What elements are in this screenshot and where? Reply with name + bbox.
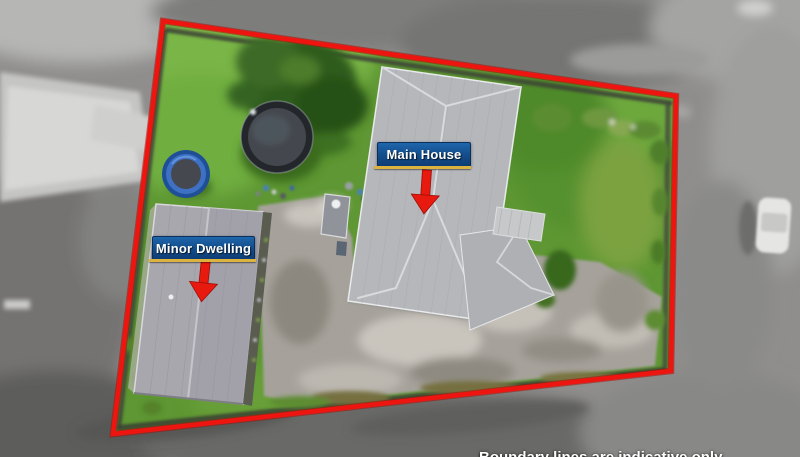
boundary-disclaimer-caption: Boundary lines are indicative only <box>479 449 722 457</box>
aerial-property-photo: Main House Minor Dwelling Boundary lines… <box>0 0 800 457</box>
minor-dwelling-label: Minor Dwelling <box>152 236 255 260</box>
aerial-photo-canvas <box>0 0 800 457</box>
minor-dwelling-label-underline <box>149 259 256 262</box>
car <box>739 197 792 255</box>
minor-dwelling-label-text: Minor Dwelling <box>156 241 251 256</box>
minor-dwelling-roof <box>128 204 272 406</box>
main-house-label-underline <box>374 166 471 169</box>
main-house-label: Main House <box>377 142 471 167</box>
main-house-label-text: Main House <box>387 147 462 162</box>
